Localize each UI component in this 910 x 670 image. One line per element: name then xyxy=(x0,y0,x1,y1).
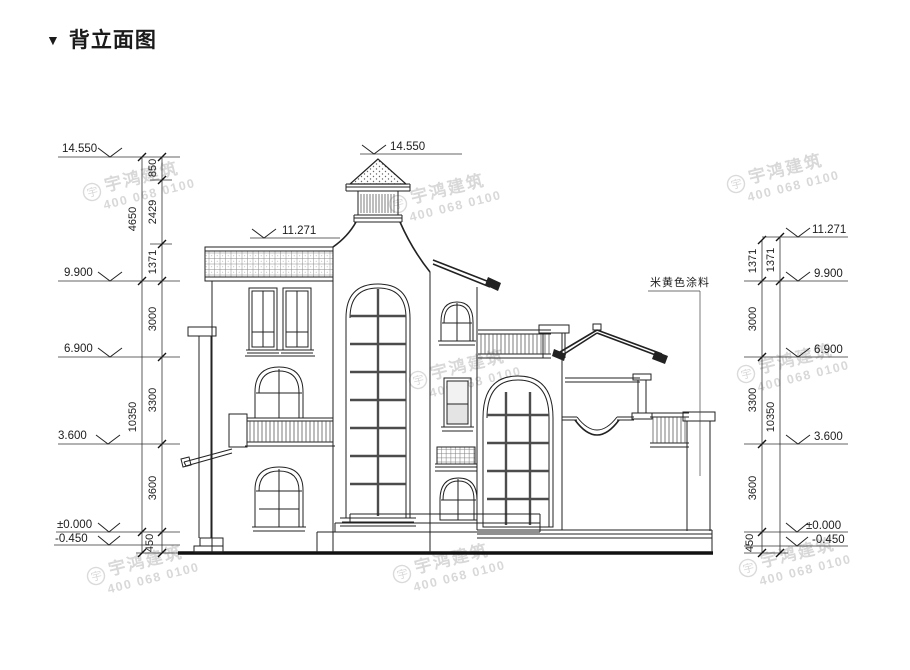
dim-label: 3600 xyxy=(147,476,159,500)
arched-window xyxy=(255,367,303,418)
left-wing xyxy=(181,247,335,552)
level-label: 14.550 xyxy=(390,141,425,153)
level-label: 3.600 xyxy=(58,430,87,442)
porch-column xyxy=(632,374,652,419)
level-label: -0.450 xyxy=(55,533,88,545)
stair-window xyxy=(340,284,416,526)
level-label: ±0.000 xyxy=(57,519,92,531)
dim-label: 10350 xyxy=(127,402,139,433)
terrace-wall xyxy=(477,530,712,552)
dim-label: 450 xyxy=(144,534,156,552)
dim-label: 3300 xyxy=(147,388,159,412)
svg-text:宇: 宇 xyxy=(90,569,104,584)
elevation-marker-top: 14.550 xyxy=(360,141,462,154)
arched-window xyxy=(438,302,476,345)
drawing-page: ▼ 背立面图 宇 宇鸿建筑 400 068 0100 宇 xyxy=(0,0,910,670)
corner-pillar xyxy=(683,412,715,531)
dim-label: 2429 xyxy=(147,200,159,224)
drawing-markers: 14.550 11.271 米黄色涂料 xyxy=(250,141,710,476)
level-label: 11.271 xyxy=(812,224,846,236)
dim-label: 4650 xyxy=(127,207,139,231)
dim-label: 1371 xyxy=(147,250,159,274)
level-label: 9.900 xyxy=(64,267,93,279)
level-label: 11.271 xyxy=(282,225,316,237)
level-label: -0.450 xyxy=(812,534,845,546)
paint-annotation: 米黄色涂料 xyxy=(648,275,710,476)
level-label: 6.900 xyxy=(64,343,93,355)
arched-window xyxy=(252,467,306,531)
pilaster xyxy=(188,327,223,552)
level-label: 14.550 xyxy=(62,143,97,155)
bay-dome xyxy=(562,417,634,435)
svg-text:宇: 宇 xyxy=(86,185,100,200)
watermark: 宇 宇鸿建筑 400 068 0100 xyxy=(387,167,503,229)
svg-text:宇: 宇 xyxy=(742,561,756,576)
large-arched-window xyxy=(483,376,553,527)
level-label: 6.900 xyxy=(814,344,843,356)
level-label: ±0.000 xyxy=(806,520,841,532)
elevation-marker-roof: 11.271 xyxy=(250,225,340,238)
level-label: 9.900 xyxy=(814,268,843,280)
svg-text:宇: 宇 xyxy=(730,177,744,192)
balcony-railing xyxy=(229,414,335,447)
dim-label: 3600 xyxy=(747,476,759,500)
window xyxy=(279,288,315,356)
watermark: 宇 宇鸿建筑 400 068 0100 xyxy=(391,537,507,599)
dim-label: 850 xyxy=(147,159,159,177)
awning xyxy=(181,449,232,467)
svg-text:宇: 宇 xyxy=(396,567,410,582)
dim-label: 450 xyxy=(744,534,756,552)
svg-text:宇: 宇 xyxy=(740,367,754,382)
window xyxy=(245,288,281,356)
dim-label: 10350 xyxy=(765,402,777,433)
dim-label: 3000 xyxy=(747,307,759,331)
dim-label: 1371 xyxy=(765,248,777,272)
watermark: 宇 宇鸿建筑 400 068 0100 xyxy=(725,147,841,209)
watermark: 宇 宇鸿建筑 400 068 0100 xyxy=(85,539,201,601)
dim-label: 1371 xyxy=(747,249,759,273)
dim-label: 3000 xyxy=(147,307,159,331)
svg-text:宇: 宇 xyxy=(412,373,426,388)
building-elevation xyxy=(178,159,715,553)
level-label: 3.600 xyxy=(814,431,843,443)
deck-railing xyxy=(478,330,551,358)
tile-box xyxy=(435,447,477,471)
paint-label: 米黄色涂料 xyxy=(650,275,710,289)
dim-label: 3300 xyxy=(747,388,759,412)
elevation-drawing: 宇 宇鸿建筑 400 068 0100 宇 宇鸿建筑 400 068 0100 … xyxy=(0,0,910,670)
